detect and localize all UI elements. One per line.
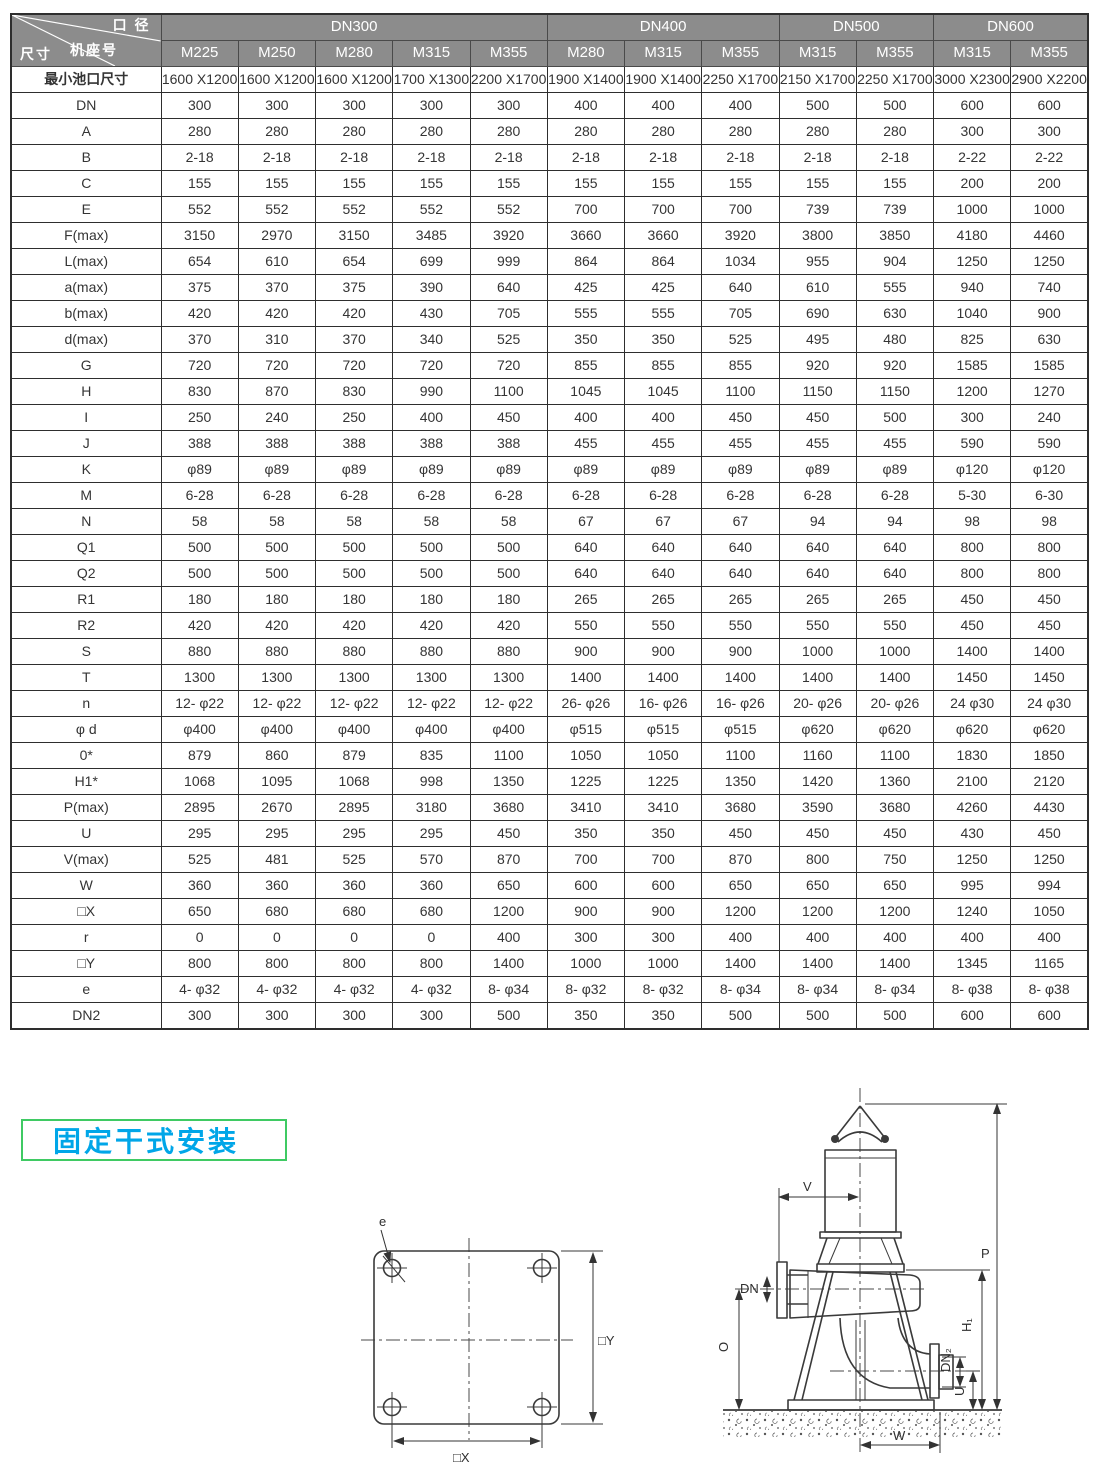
cell: 2895 xyxy=(316,795,393,821)
cell: 2120 xyxy=(1011,769,1088,795)
cell: 265 xyxy=(625,587,702,613)
row-label: N xyxy=(11,509,161,535)
cell: 500 xyxy=(161,561,238,587)
cell: 1900 X1400 xyxy=(625,67,702,93)
table-row: E55255255255255270070070073973910001000 xyxy=(11,197,1088,223)
table-row: V(max)5254815255708707007008708007501250… xyxy=(11,847,1088,873)
cell: 1160 xyxy=(779,743,856,769)
cell: 880 xyxy=(161,639,238,665)
table-row: a(max)3753703753906404254256406105559407… xyxy=(11,275,1088,301)
cell: 830 xyxy=(161,379,238,405)
cell: 830 xyxy=(316,379,393,405)
row-label: B xyxy=(11,145,161,171)
table-row: b(max)4204204204307055555557056906301040… xyxy=(11,301,1088,327)
cell: 1200 xyxy=(470,899,547,925)
cell: 1350 xyxy=(702,769,779,795)
cell: 94 xyxy=(779,509,856,535)
cell: 1585 xyxy=(1011,353,1088,379)
cell: 16- φ26 xyxy=(702,691,779,717)
cell: 300 xyxy=(316,1003,393,1030)
frame-label: M280 xyxy=(547,41,624,67)
cell: 400 xyxy=(547,93,624,119)
row-label: 0* xyxy=(11,743,161,769)
cell: 1850 xyxy=(1011,743,1088,769)
cell: 500 xyxy=(470,561,547,587)
cell: 155 xyxy=(316,171,393,197)
cell: 1250 xyxy=(1011,249,1088,275)
cell: 3680 xyxy=(702,795,779,821)
cell: φ89 xyxy=(393,457,470,483)
dim-o-label: O xyxy=(716,1342,731,1352)
cell: 370 xyxy=(161,327,238,353)
row-label: L(max) xyxy=(11,249,161,275)
base-plate xyxy=(374,1251,559,1424)
column-group-label: DN600 xyxy=(934,14,1089,41)
cell: 450 xyxy=(779,405,856,431)
cell: 1150 xyxy=(856,379,933,405)
cell: 500 xyxy=(856,405,933,431)
cell: 450 xyxy=(470,405,547,431)
cell: 4- φ32 xyxy=(393,977,470,1003)
cell: 740 xyxy=(1011,275,1088,301)
cell: 500 xyxy=(238,561,315,587)
cell: 16- φ26 xyxy=(625,691,702,717)
cell: 700 xyxy=(547,197,624,223)
cell: φ89 xyxy=(470,457,547,483)
cell: 525 xyxy=(470,327,547,353)
support-stand xyxy=(788,1272,934,1410)
table-row: φ dφ400φ400φ400φ400φ400φ515φ515φ515φ620φ… xyxy=(11,717,1088,743)
cell: 525 xyxy=(702,327,779,353)
cell: 1250 xyxy=(934,249,1011,275)
cell: 4260 xyxy=(934,795,1011,821)
cell: 2-18 xyxy=(161,145,238,171)
cell: 552 xyxy=(161,197,238,223)
dim-dn2: DN₂ xyxy=(938,1348,966,1387)
cell: 67 xyxy=(625,509,702,535)
table-row: N585858585867676794949898 xyxy=(11,509,1088,535)
cell: 6-28 xyxy=(316,483,393,509)
cell: 880 xyxy=(316,639,393,665)
row-label: d(max) xyxy=(11,327,161,353)
cell: 800 xyxy=(161,951,238,977)
cell: 2900 X2200 xyxy=(1011,67,1088,93)
cell: 20- φ26 xyxy=(856,691,933,717)
cell: φ515 xyxy=(547,717,624,743)
cell: 940 xyxy=(934,275,1011,301)
spec-table-body: 最小池口尺寸1600 X12001600 X12001600 X12001700… xyxy=(11,67,1088,1030)
cell: 180 xyxy=(161,587,238,613)
row-label: C xyxy=(11,171,161,197)
cell: 400 xyxy=(547,405,624,431)
cell: 3920 xyxy=(702,223,779,249)
cell: 180 xyxy=(470,587,547,613)
cell: 2-18 xyxy=(779,145,856,171)
cell: 720 xyxy=(470,353,547,379)
cell: 1600 X1200 xyxy=(161,67,238,93)
cell: 20- φ26 xyxy=(779,691,856,717)
cell: 12- φ22 xyxy=(393,691,470,717)
cell: 1400 xyxy=(934,639,1011,665)
table-header-row-frame: M225M250M280M315M355M280M315M355M315M355… xyxy=(11,41,1088,67)
table-row: DN300300300300300400400400500500600600 xyxy=(11,93,1088,119)
cell: 650 xyxy=(779,873,856,899)
cell: 879 xyxy=(316,743,393,769)
cell: 295 xyxy=(238,821,315,847)
cell: 500 xyxy=(856,93,933,119)
cell: 480 xyxy=(856,327,933,353)
cell: 2670 xyxy=(238,795,315,821)
cell: 864 xyxy=(625,249,702,275)
cell: 600 xyxy=(934,93,1011,119)
corner-label-frame: 机座号 xyxy=(70,43,118,59)
table-header-row-diameter: 口 径 机座号 尺寸 DN300DN400DN500DN600 xyxy=(11,14,1088,41)
cell: 640 xyxy=(625,535,702,561)
cell: 400 xyxy=(702,93,779,119)
frame-label: M280 xyxy=(316,41,393,67)
cell: φ515 xyxy=(702,717,779,743)
cell: φ89 xyxy=(238,457,315,483)
cell: 350 xyxy=(547,327,624,353)
cell: 280 xyxy=(470,119,547,145)
cell: 1400 xyxy=(625,665,702,691)
cell: 1200 xyxy=(702,899,779,925)
cell: 360 xyxy=(393,873,470,899)
cell: 1225 xyxy=(625,769,702,795)
dim-v-label: V xyxy=(803,1179,812,1194)
cell: 388 xyxy=(238,431,315,457)
cell: 700 xyxy=(547,847,624,873)
dim-e-label: e xyxy=(379,1214,386,1229)
cell: 1165 xyxy=(1011,951,1088,977)
frame-label: M315 xyxy=(934,41,1011,67)
cell: 8- φ34 xyxy=(702,977,779,1003)
dim-square-x-label: □X xyxy=(453,1450,470,1465)
cell: 3800 xyxy=(779,223,856,249)
cell: 994 xyxy=(1011,873,1088,899)
cell: 879 xyxy=(161,743,238,769)
cell: 1400 xyxy=(1011,639,1088,665)
frame-label: M355 xyxy=(702,41,779,67)
row-label: A xyxy=(11,119,161,145)
row-label: F(max) xyxy=(11,223,161,249)
cell: 640 xyxy=(702,275,779,301)
base-plate-drawing: e □Y □X xyxy=(335,1200,665,1477)
row-label: K xyxy=(11,457,161,483)
dim-square-y: □Y xyxy=(561,1251,615,1424)
cell: 58 xyxy=(470,509,547,535)
cell: 1068 xyxy=(316,769,393,795)
cell: 1050 xyxy=(547,743,624,769)
cell: 420 xyxy=(393,613,470,639)
cell: 1300 xyxy=(161,665,238,691)
cell: 4180 xyxy=(934,223,1011,249)
table-row: A280280280280280280280280280280300300 xyxy=(11,119,1088,145)
cell: 2970 xyxy=(238,223,315,249)
cell: 155 xyxy=(238,171,315,197)
cell: 855 xyxy=(702,353,779,379)
cell: 1900 X1400 xyxy=(547,67,624,93)
cell: 455 xyxy=(547,431,624,457)
cell: φ120 xyxy=(934,457,1011,483)
table-row: n12- φ2212- φ2212- φ2212- φ2212- φ2226- … xyxy=(11,691,1088,717)
corner-cell: 口 径 机座号 尺寸 xyxy=(11,14,161,67)
cell: 1400 xyxy=(856,665,933,691)
cell: 400 xyxy=(779,925,856,951)
cell: 67 xyxy=(702,509,779,535)
cell: 1200 xyxy=(856,899,933,925)
cell: φ620 xyxy=(779,717,856,743)
cell: 1300 xyxy=(470,665,547,691)
cell: 295 xyxy=(393,821,470,847)
row-label: Q2 xyxy=(11,561,161,587)
table-row: M6-286-286-286-286-286-286-286-286-286-2… xyxy=(11,483,1088,509)
cell: 155 xyxy=(547,171,624,197)
column-group-label: DN500 xyxy=(779,14,934,41)
cell: 3920 xyxy=(470,223,547,249)
cell: 900 xyxy=(547,639,624,665)
cell: 654 xyxy=(316,249,393,275)
cell: 300 xyxy=(393,1003,470,1030)
cell: 265 xyxy=(702,587,779,613)
cell: 250 xyxy=(161,405,238,431)
cell: 600 xyxy=(934,1003,1011,1030)
corner-label-diameter: 口 径 xyxy=(113,18,151,34)
cell: 6-28 xyxy=(161,483,238,509)
cell: 690 xyxy=(779,301,856,327)
cell: 2-18 xyxy=(856,145,933,171)
cell: 855 xyxy=(547,353,624,379)
corner-label-size: 尺寸 xyxy=(20,47,52,63)
cell: 155 xyxy=(393,171,470,197)
cell: 12- φ22 xyxy=(238,691,315,717)
cell: 550 xyxy=(856,613,933,639)
cell: 3150 xyxy=(316,223,393,249)
cell: 2200 X1700 xyxy=(470,67,547,93)
cell: 739 xyxy=(779,197,856,223)
cell: 3680 xyxy=(856,795,933,821)
cell: 1000 xyxy=(1011,197,1088,223)
cell: 200 xyxy=(934,171,1011,197)
cell: 640 xyxy=(856,561,933,587)
row-label: W xyxy=(11,873,161,899)
frame-label: M315 xyxy=(779,41,856,67)
cell: 6-30 xyxy=(1011,483,1088,509)
row-label: φ d xyxy=(11,717,161,743)
cell: 2-18 xyxy=(547,145,624,171)
table-row: B2-182-182-182-182-182-182-182-182-182-1… xyxy=(11,145,1088,171)
cell: 3590 xyxy=(779,795,856,821)
cell: 900 xyxy=(625,639,702,665)
cell: 800 xyxy=(934,535,1011,561)
cell: 2-18 xyxy=(238,145,315,171)
cell: 650 xyxy=(702,873,779,899)
frame-label: M225 xyxy=(161,41,238,67)
cell: 300 xyxy=(934,119,1011,145)
cell: 388 xyxy=(393,431,470,457)
cell: 705 xyxy=(470,301,547,327)
cell: 450 xyxy=(934,613,1011,639)
cell: 420 xyxy=(161,301,238,327)
cell: 5-30 xyxy=(934,483,1011,509)
cell: 180 xyxy=(238,587,315,613)
cell: 550 xyxy=(702,613,779,639)
cell: 2-22 xyxy=(934,145,1011,171)
cell: 552 xyxy=(238,197,315,223)
cell: 6-28 xyxy=(702,483,779,509)
cell: 1350 xyxy=(470,769,547,795)
cell: 3410 xyxy=(625,795,702,821)
cell: 2-18 xyxy=(316,145,393,171)
cell: 300 xyxy=(547,925,624,951)
cell: 0 xyxy=(238,925,315,951)
cell: φ400 xyxy=(316,717,393,743)
cell: 370 xyxy=(238,275,315,301)
cell: 400 xyxy=(702,925,779,951)
cell: 1420 xyxy=(779,769,856,795)
table-row: U295295295295450350350450450450430450 xyxy=(11,821,1088,847)
cell: 699 xyxy=(393,249,470,275)
cell: 500 xyxy=(161,535,238,561)
cell: 350 xyxy=(625,327,702,353)
cell: 450 xyxy=(1011,821,1088,847)
cell: 180 xyxy=(393,587,470,613)
cell: 400 xyxy=(1011,925,1088,951)
cell: 500 xyxy=(470,535,547,561)
dim-o: O xyxy=(716,1290,739,1409)
cell: 58 xyxy=(316,509,393,535)
cell: 420 xyxy=(316,613,393,639)
cell: 654 xyxy=(161,249,238,275)
table-row: R1180180180180180265265265265265450450 xyxy=(11,587,1088,613)
cell: 94 xyxy=(856,509,933,535)
cell: 590 xyxy=(934,431,1011,457)
cell: 2-18 xyxy=(470,145,547,171)
cell: 705 xyxy=(702,301,779,327)
cell: 640 xyxy=(702,535,779,561)
cell: φ400 xyxy=(393,717,470,743)
cell: 481 xyxy=(238,847,315,873)
cell: 265 xyxy=(547,587,624,613)
cell: 550 xyxy=(547,613,624,639)
cell: φ400 xyxy=(470,717,547,743)
table-row: G72072072072072085585585592092015851585 xyxy=(11,353,1088,379)
cell: 1250 xyxy=(934,847,1011,873)
cell: 630 xyxy=(856,301,933,327)
row-label: U xyxy=(11,821,161,847)
cell: 24 φ30 xyxy=(934,691,1011,717)
cell: 640 xyxy=(470,275,547,301)
row-label: E xyxy=(11,197,161,223)
cell: 280 xyxy=(702,119,779,145)
cell: 500 xyxy=(856,1003,933,1030)
cell: 300 xyxy=(934,405,1011,431)
ground xyxy=(723,1410,1002,1437)
cell: 0 xyxy=(316,925,393,951)
cell: 6-28 xyxy=(393,483,470,509)
cell: 880 xyxy=(393,639,470,665)
cell: 650 xyxy=(470,873,547,899)
row-label: 最小池口尺寸 xyxy=(11,67,161,93)
cell: 500 xyxy=(779,93,856,119)
table-row: e4- φ324- φ324- φ324- φ328- φ348- φ328- … xyxy=(11,977,1088,1003)
cell: φ400 xyxy=(238,717,315,743)
cell: 2-18 xyxy=(702,145,779,171)
cell: 300 xyxy=(393,93,470,119)
cell: 500 xyxy=(316,535,393,561)
frame-label: M355 xyxy=(1011,41,1088,67)
table-row: 0*87986087983511001050105011001160110018… xyxy=(11,743,1088,769)
cell: 240 xyxy=(238,405,315,431)
cell: 630 xyxy=(1011,327,1088,353)
row-label: b(max) xyxy=(11,301,161,327)
cell: φ400 xyxy=(161,717,238,743)
cell: 600 xyxy=(1011,1003,1088,1030)
cell: 300 xyxy=(161,93,238,119)
cell: 720 xyxy=(161,353,238,379)
cell: 58 xyxy=(161,509,238,535)
table-row: L(max)6546106546999998648641034955904125… xyxy=(11,249,1088,275)
cell: 590 xyxy=(1011,431,1088,457)
cell: 58 xyxy=(238,509,315,535)
row-label: n xyxy=(11,691,161,717)
cell: φ89 xyxy=(625,457,702,483)
cell: 3660 xyxy=(625,223,702,249)
cell: 300 xyxy=(316,93,393,119)
cell: 280 xyxy=(316,119,393,145)
frame-label: M315 xyxy=(393,41,470,67)
cell: 2-18 xyxy=(393,145,470,171)
cell: 155 xyxy=(161,171,238,197)
cell: 300 xyxy=(1011,119,1088,145)
cell: 3410 xyxy=(547,795,624,821)
cell: 3680 xyxy=(470,795,547,821)
cell: 8- φ34 xyxy=(470,977,547,1003)
row-label: V(max) xyxy=(11,847,161,873)
cell: 240 xyxy=(1011,405,1088,431)
cell: 610 xyxy=(238,249,315,275)
table-row: 最小池口尺寸1600 X12001600 X12001600 X12001700… xyxy=(11,67,1088,93)
cell: 680 xyxy=(393,899,470,925)
row-label: Q1 xyxy=(11,535,161,561)
dim-u-label: U xyxy=(952,1387,967,1396)
cell: 265 xyxy=(779,587,856,613)
cell: 1400 xyxy=(702,951,779,977)
row-label: G xyxy=(11,353,161,379)
volute-casing xyxy=(777,1262,920,1318)
bolt-holes xyxy=(377,1253,557,1448)
cell: 12- φ22 xyxy=(470,691,547,717)
row-label: P(max) xyxy=(11,795,161,821)
cell: 450 xyxy=(1011,587,1088,613)
cell: 3660 xyxy=(547,223,624,249)
installation-type-text: 固定干式安装 xyxy=(53,1120,239,1160)
cell: 1034 xyxy=(702,249,779,275)
cell: 1300 xyxy=(238,665,315,691)
cell: 1400 xyxy=(547,665,624,691)
cell: 1050 xyxy=(625,743,702,769)
cell: φ120 xyxy=(1011,457,1088,483)
cell: 920 xyxy=(856,353,933,379)
cell: 420 xyxy=(316,301,393,327)
cell: 400 xyxy=(934,925,1011,951)
cell: 610 xyxy=(779,275,856,301)
cell: 1100 xyxy=(470,379,547,405)
table-row: □Y80080080080014001000100014001400140013… xyxy=(11,951,1088,977)
row-label: R2 xyxy=(11,613,161,639)
cell: 1000 xyxy=(547,951,624,977)
cell: 300 xyxy=(238,1003,315,1030)
